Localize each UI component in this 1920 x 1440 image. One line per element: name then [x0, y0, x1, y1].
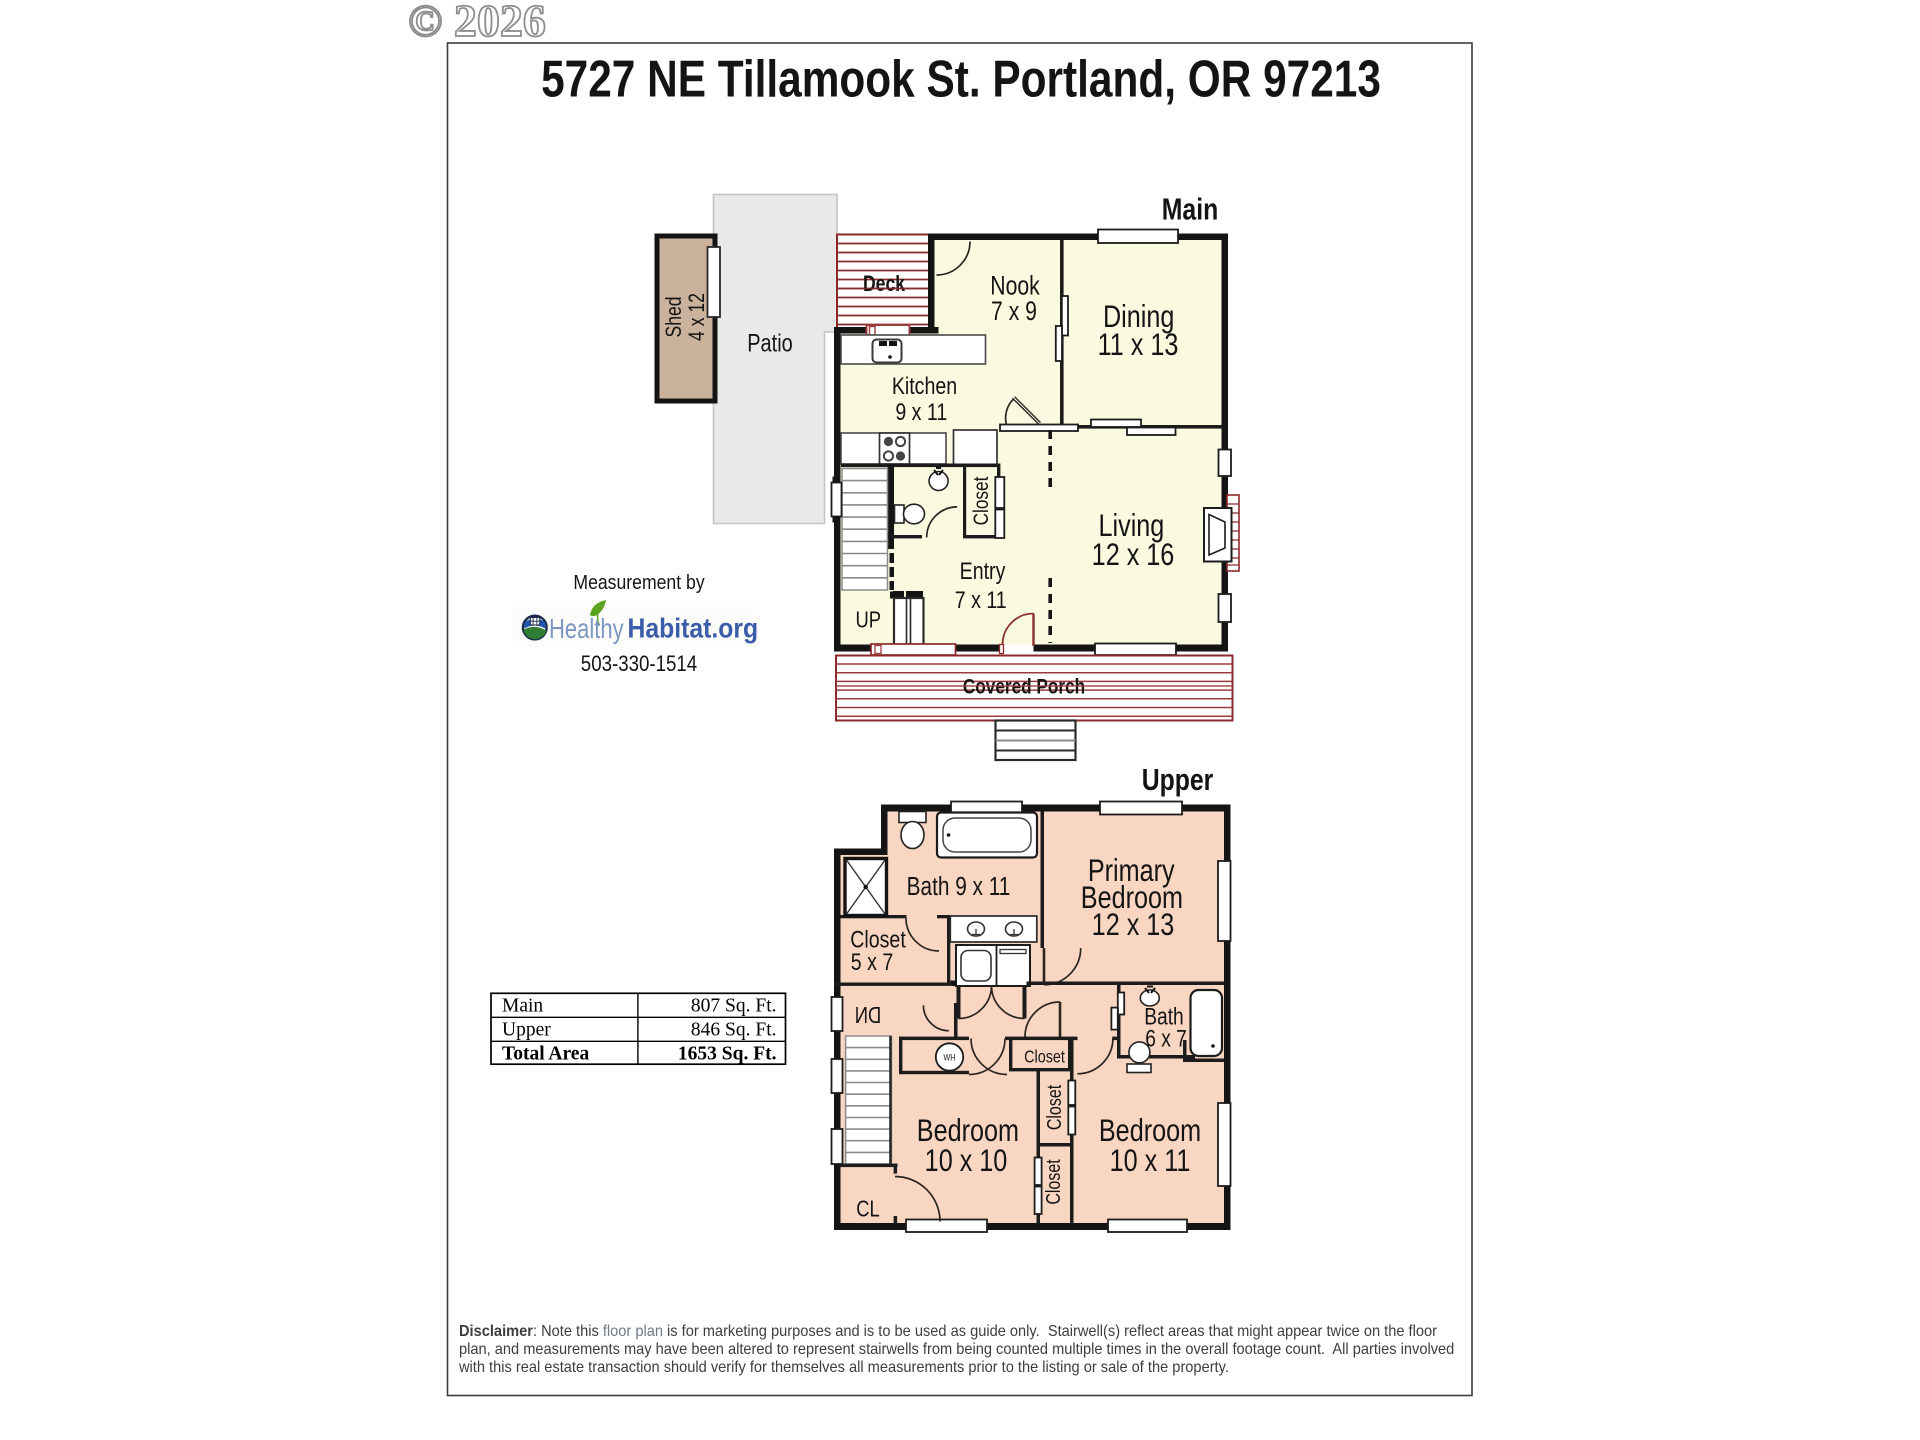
svg-text:Bath 9 x 11: Bath 9 x 11 — [907, 872, 1011, 901]
svg-text:DN: DN — [855, 1003, 882, 1028]
svg-text:Closet: Closet — [969, 476, 993, 525]
svg-text:Kitchen: Kitchen — [892, 372, 957, 400]
svg-text:Measurement by: Measurement by — [573, 572, 705, 595]
svg-text:10 x 10: 10 x 10 — [925, 1143, 1008, 1178]
svg-text:9 x 11: 9 x 11 — [895, 398, 947, 426]
svg-text:Closet: Closet — [1042, 1159, 1064, 1204]
svg-text:Main: Main — [502, 995, 543, 1016]
svg-text:WH: WH — [944, 1053, 956, 1063]
svg-text:12 x 16: 12 x 16 — [1092, 537, 1175, 572]
svg-text:Entry: Entry — [960, 557, 1007, 585]
svg-text:5 x 7: 5 x 7 — [851, 948, 893, 976]
svg-text:11 x 13: 11 x 13 — [1098, 327, 1179, 362]
svg-text:UP: UP — [856, 608, 882, 633]
svg-text:Healthy: Healthy — [549, 614, 624, 645]
svg-text:plan, and measurements may hav: plan, and measurements may have been alt… — [459, 1340, 1454, 1358]
svg-text:4 x 12: 4 x 12 — [685, 293, 709, 341]
svg-text:12 x 13: 12 x 13 — [1092, 907, 1175, 942]
svg-text:10 x 11: 10 x 11 — [1110, 1143, 1191, 1178]
svg-text:with this real estate transact: with this real estate transaction should… — [458, 1358, 1229, 1376]
svg-text:6 x 7: 6 x 7 — [1145, 1024, 1187, 1052]
svg-text:Total Area: Total Area — [502, 1043, 589, 1064]
svg-text:CL: CL — [856, 1197, 880, 1222]
svg-text:7 x 9: 7 x 9 — [991, 297, 1037, 327]
svg-text:5727 NE Tillamook St. Portland: 5727 NE Tillamook St. Portland, OR 97213 — [541, 50, 1381, 108]
svg-text:Main: Main — [1162, 192, 1218, 226]
svg-text:Covered Porch: Covered Porch — [963, 675, 1085, 699]
svg-text:Patio: Patio — [747, 329, 793, 357]
svg-text:© 2026: © 2026 — [408, 0, 546, 46]
svg-text:7 x 11: 7 x 11 — [955, 586, 1007, 614]
svg-text:Closet: Closet — [1024, 1047, 1065, 1067]
svg-text:Deck: Deck — [863, 272, 906, 296]
svg-text:Closet: Closet — [1043, 1085, 1065, 1130]
svg-text:846 Sq. Ft.: 846 Sq. Ft. — [691, 1019, 777, 1040]
svg-text:Upper: Upper — [1142, 762, 1214, 796]
svg-text:Disclaimer: Note this floor pl: Disclaimer: Note this floor plan is for … — [459, 1322, 1437, 1340]
svg-text:Shed: Shed — [662, 296, 686, 337]
svg-text:807 Sq. Ft.: 807 Sq. Ft. — [691, 995, 777, 1016]
svg-text:Upper: Upper — [502, 1019, 551, 1040]
svg-text:Habitat.org: Habitat.org — [628, 612, 759, 644]
svg-text:1653 Sq. Ft.: 1653 Sq. Ft. — [678, 1043, 777, 1064]
svg-text:503-330-1514: 503-330-1514 — [581, 653, 697, 677]
